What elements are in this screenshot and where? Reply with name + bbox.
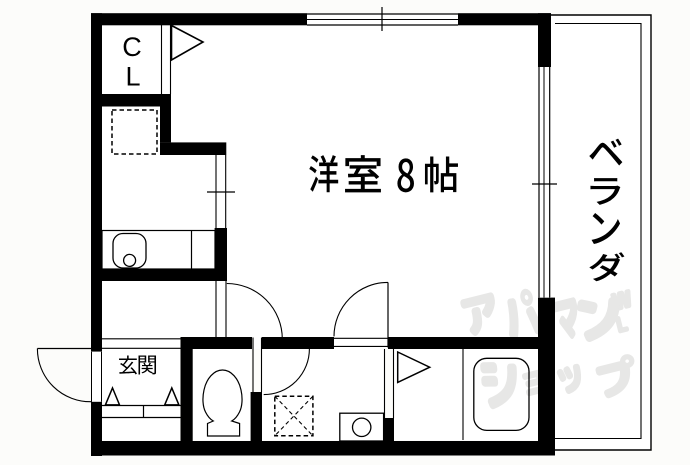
svg-text:C: C <box>122 32 142 62</box>
svg-text:L: L <box>125 62 140 92</box>
